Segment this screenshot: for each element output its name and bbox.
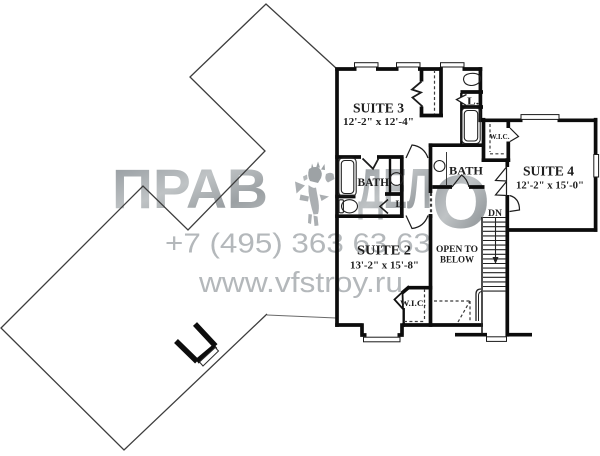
svg-text:W.I.C.: W.I.C. (400, 299, 426, 308)
svg-text:BATH: BATH (358, 175, 390, 189)
svg-text:SUITE 2: SUITE 2 (357, 243, 411, 258)
svg-text:12'-2" x 12'-4": 12'-2" x 12'-4" (343, 117, 414, 128)
svg-text:L: L (396, 200, 403, 210)
svg-text:SUITE 4: SUITE 4 (523, 164, 574, 179)
svg-text:OPEN TO: OPEN TO (436, 245, 478, 255)
svg-text:BELOW: BELOW (440, 256, 474, 266)
svg-text:12'-2" x 15'-0": 12'-2" x 15'-0" (516, 181, 584, 192)
svg-text:ДЕЛ: ДЕЛ (358, 157, 432, 221)
svg-text:www.vfstroy.ru: www.vfstroy.ru (198, 267, 403, 299)
svg-text:BATH: BATH (449, 164, 484, 178)
svg-text:L.: L. (467, 96, 479, 108)
svg-text:W.I.C.: W.I.C. (490, 132, 510, 141)
svg-text:DN: DN (488, 208, 503, 218)
svg-text:ПРАВ: ПРАВ (112, 157, 268, 220)
svg-text:13'-2" x 15'-8": 13'-2" x 15'-8" (350, 261, 419, 272)
svg-text:SUITE 3: SUITE 3 (353, 101, 404, 116)
